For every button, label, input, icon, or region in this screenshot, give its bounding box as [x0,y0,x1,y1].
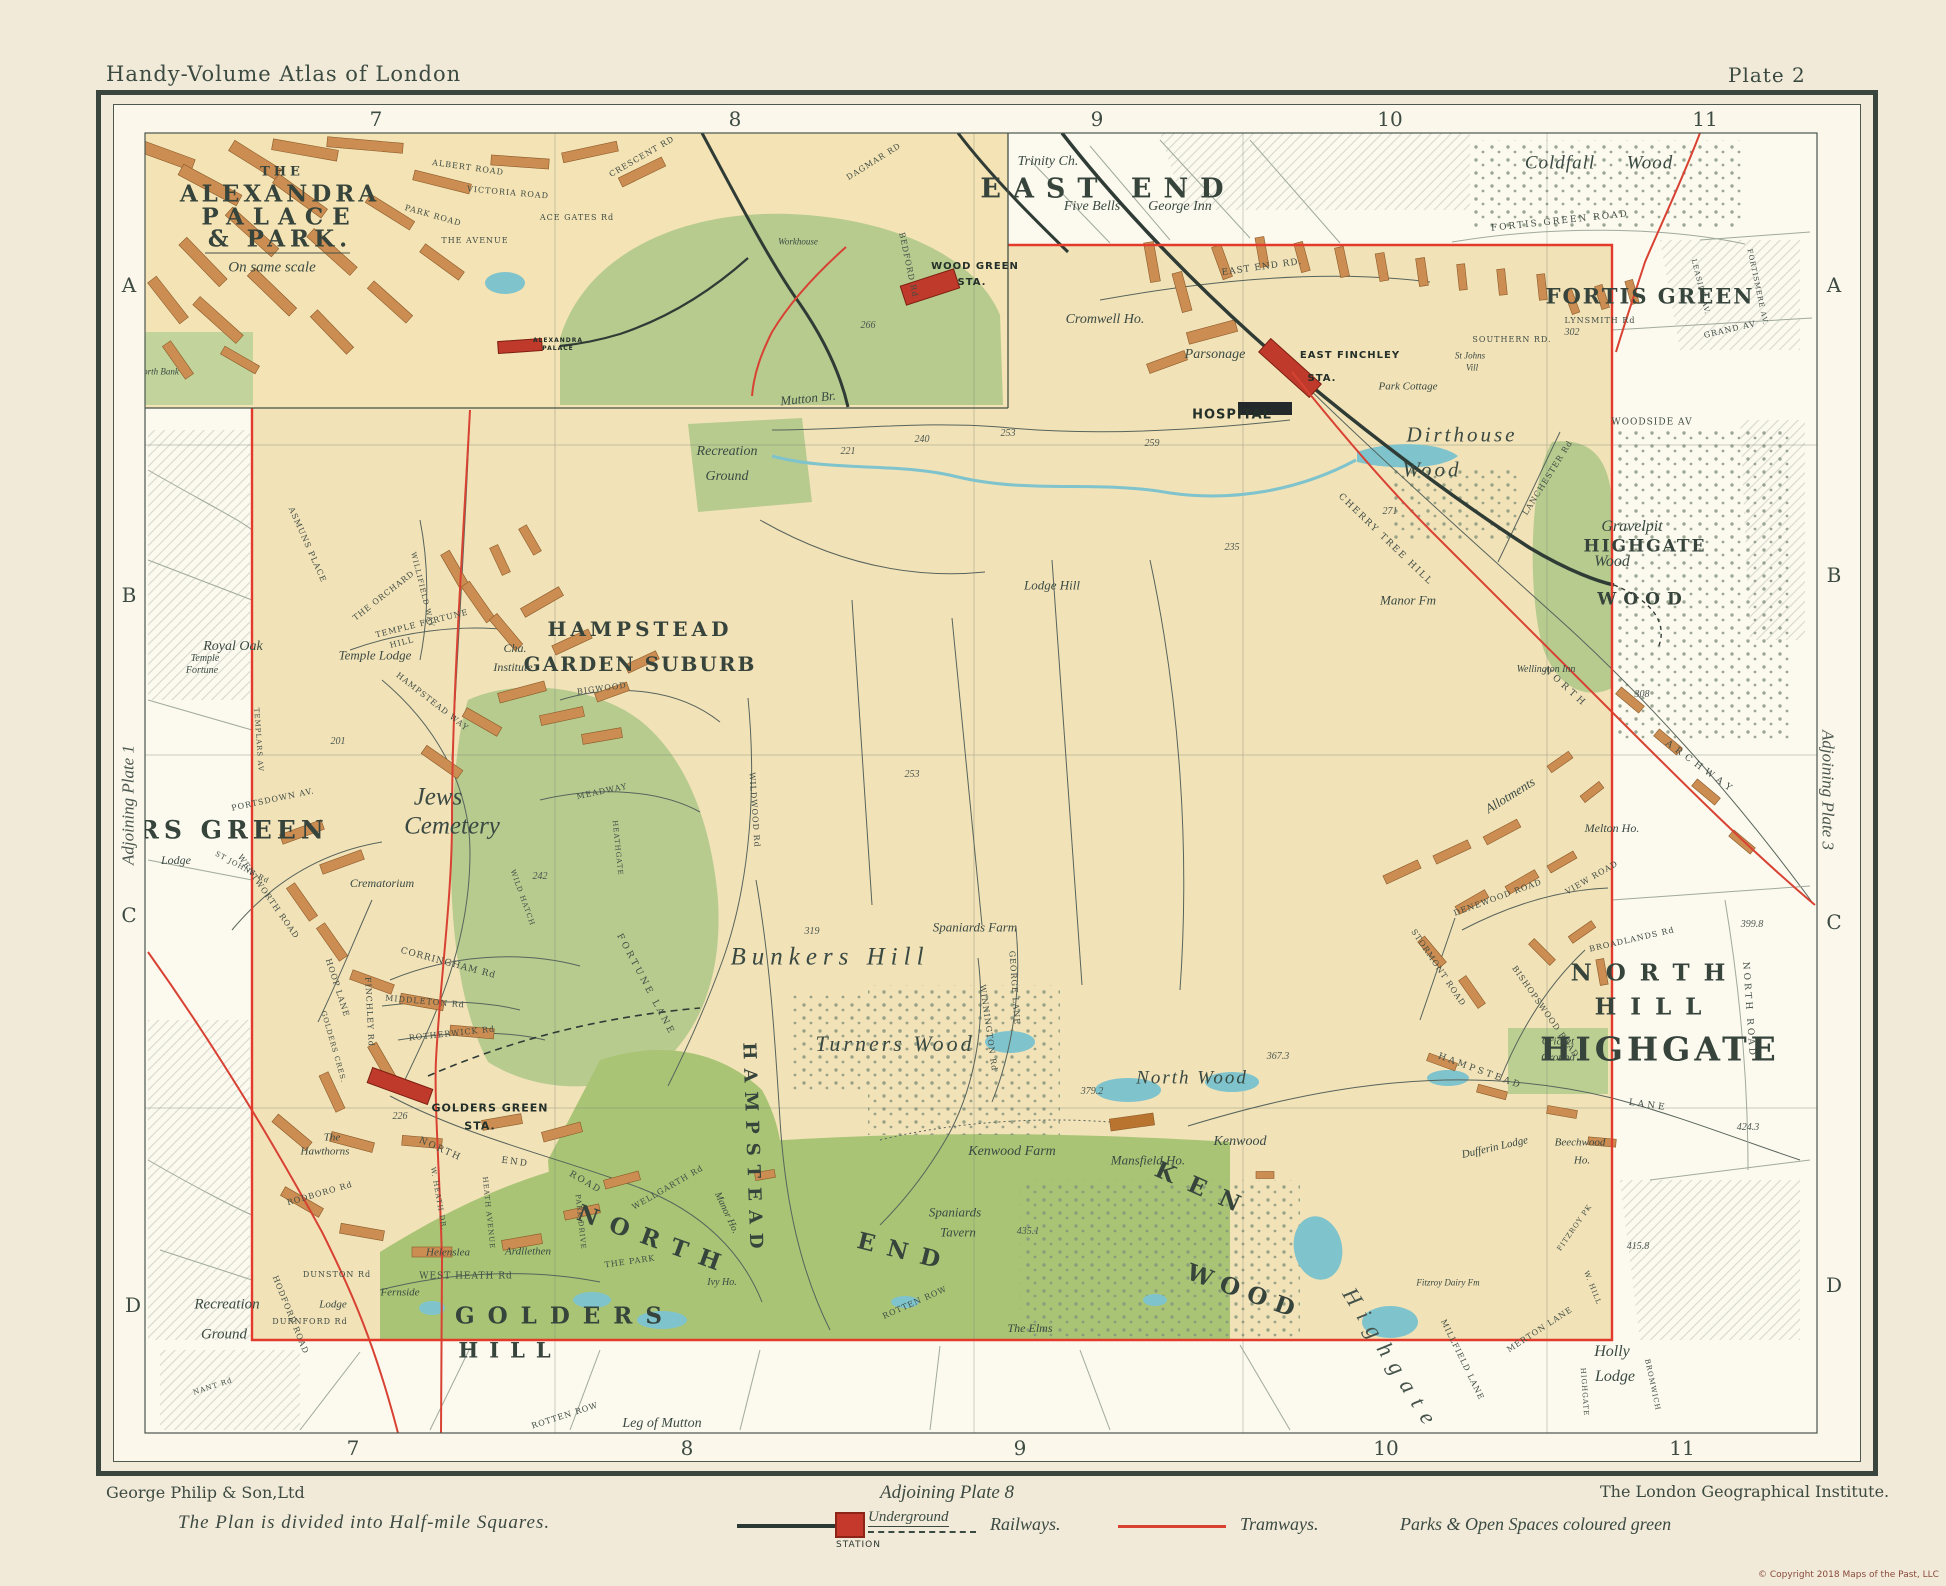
legend-parks-label: Parks & Open Spaces coloured green [1400,1514,1671,1535]
legend-station-box [835,1512,865,1538]
institute-credit: The London Geographical Institute. [1600,1482,1889,1501]
legend-tramway-line [1118,1525,1226,1528]
publisher-credit: George Philip & Son,Ltd [106,1483,305,1502]
page-title: Handy-Volume Atlas of London [106,62,461,86]
scale-note: The Plan is divided into Half-mile Squar… [178,1512,550,1534]
legend-tramways-label: Tramways. [1240,1514,1319,1535]
legend-station-label: STATION [836,1540,881,1550]
atlas-page: Handy-Volume Atlas of London Plate 2 [0,0,1946,1586]
adjoining-plate-8: Adjoining Plate 8 [880,1482,1014,1504]
legend-railway-line [737,1524,837,1528]
legend-railways-label: Railways. [990,1514,1061,1535]
copyright-line: © Copyright 2018 Maps of the Past, LLC [1758,1570,1939,1580]
legend-underground-label: Underground [868,1509,949,1527]
plate-number: Plate 2 [1728,63,1806,87]
inner-frame [113,104,1861,1462]
legend-underground-dashes [868,1531,976,1533]
